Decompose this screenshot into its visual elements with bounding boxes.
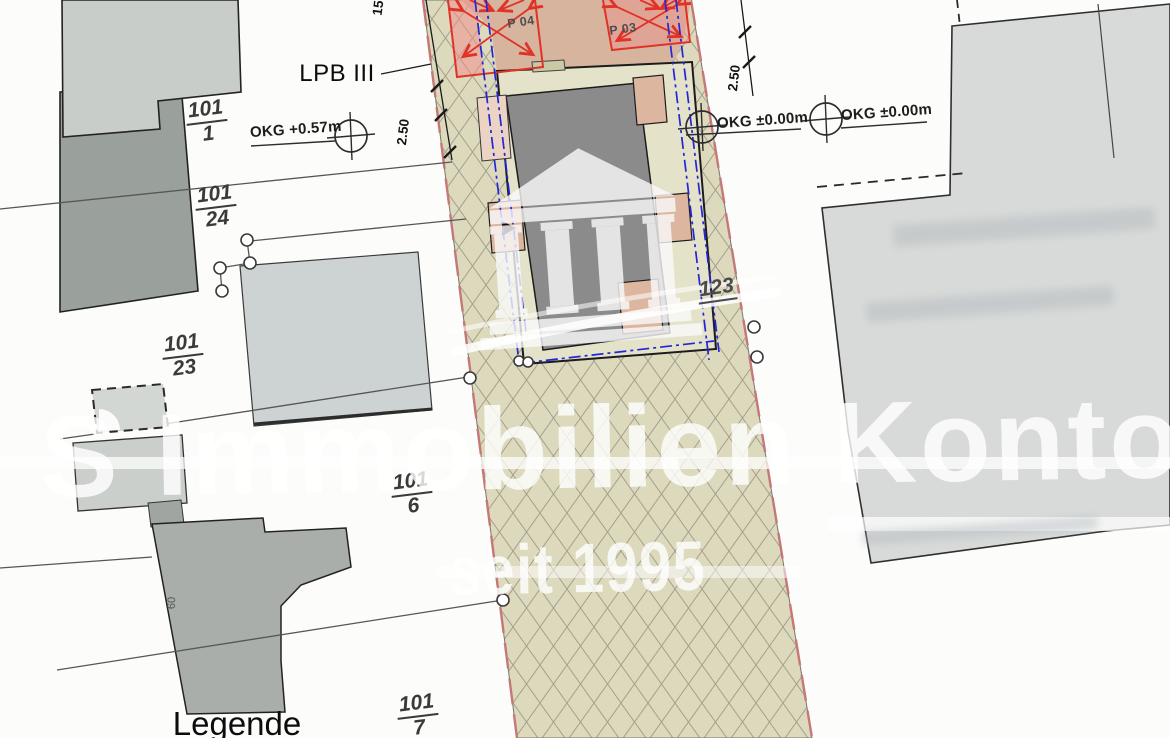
lpb-leader-line [381, 64, 431, 74]
entry-step [532, 60, 565, 72]
left-buildings [60, 0, 432, 714]
site-plan-scan: LPB III OKG +0.57m OKG ±0.00m OKG ±0.00m… [0, 0, 1170, 738]
parcel-label-101-23: 101 23 [160, 330, 207, 382]
building-dashed-shed [92, 384, 168, 433]
house-depth-label: 60 [166, 597, 178, 610]
parcel-label-101-1: 101 1 [184, 96, 231, 148]
legend-title: Legende [173, 705, 301, 738]
building-c [73, 435, 187, 511]
parcel-label-101-24: 101 24 [193, 181, 240, 233]
dashed-edge-top [817, 173, 967, 187]
dimension-right: 2.50 [725, 64, 743, 92]
dimension-top: 15 [370, 0, 387, 16]
area-label: LPB III [299, 60, 375, 88]
swoosh-band-3 [436, 566, 800, 578]
dimension-left: 2.50 [394, 118, 412, 146]
parcel-label-101-6: 101 6 [389, 468, 436, 520]
dashed-edge-corner [957, 0, 960, 26]
building-legend-dark [152, 518, 351, 714]
building-mid [240, 252, 432, 426]
swoosh-band-1 [0, 457, 1170, 469]
parcel-label-101-7: 101 7 [395, 690, 442, 738]
right-building [817, 0, 1170, 563]
site-parcel-number: 123 [695, 273, 737, 304]
